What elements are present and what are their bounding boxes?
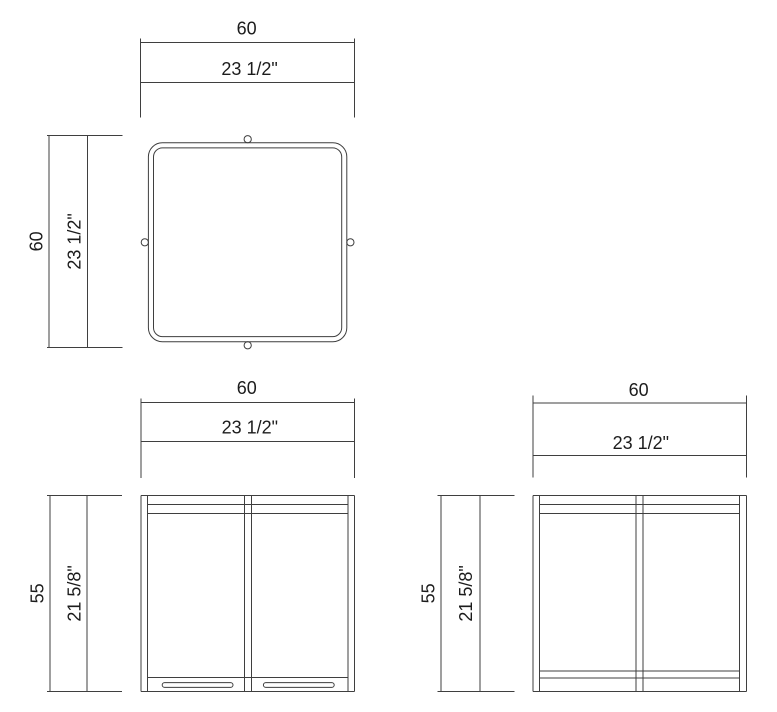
svg-text:55: 55 [419,583,439,603]
svg-text:23 1/2": 23 1/2" [64,213,84,269]
svg-text:21 5/8": 21 5/8" [64,565,84,621]
svg-text:55: 55 [28,583,48,603]
svg-text:23 1/2": 23 1/2" [221,59,277,79]
svg-text:60: 60 [629,380,649,400]
svg-text:23 1/2": 23 1/2" [222,418,278,438]
svg-text:60: 60 [27,231,47,251]
svg-text:23 1/2": 23 1/2" [613,433,669,453]
svg-text:21 5/8": 21 5/8" [456,565,476,621]
svg-text:60: 60 [237,378,257,398]
svg-text:60: 60 [237,19,257,39]
